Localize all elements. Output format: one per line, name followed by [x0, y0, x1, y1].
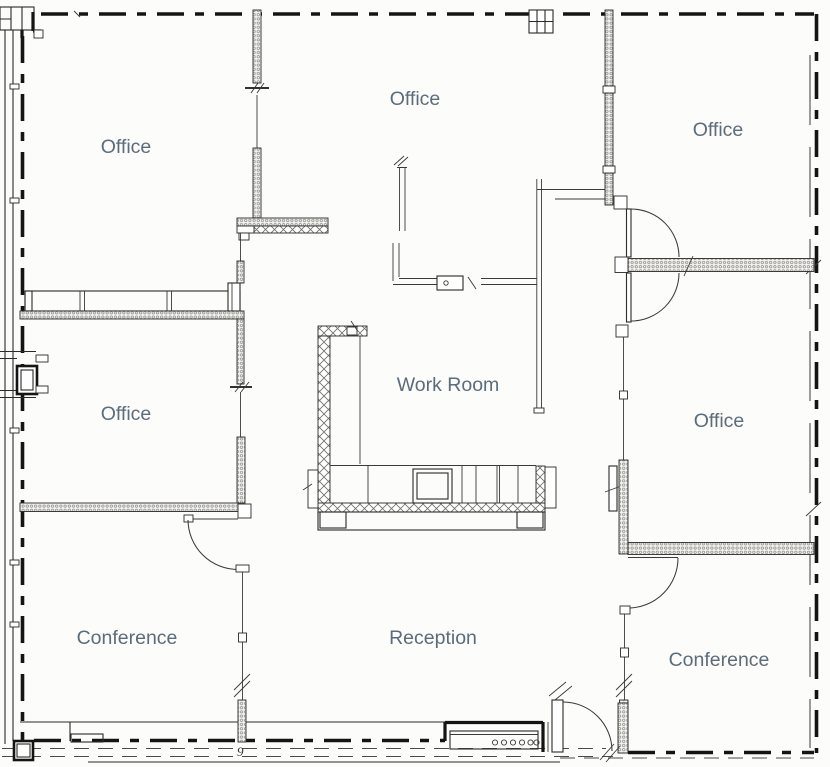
storefront-conference-right — [560, 744, 814, 762]
door-conference-right — [620, 558, 678, 615]
partition-conference-left: 9 — [234, 572, 250, 759]
partition-office-mid-right — [605, 337, 628, 554]
entry-door — [549, 682, 628, 753]
floor-plan-drawing: 9 — [0, 0, 830, 767]
sink-fixture — [437, 276, 463, 290]
entry-vestibule-walls — [445, 722, 548, 752]
partition-midleft-office — [230, 319, 252, 503]
column-mid-left — [0, 352, 48, 398]
room-label-office-mid-right: Office — [694, 410, 745, 432]
reception-desk — [450, 731, 539, 749]
wall-conference-left-top — [20, 503, 251, 518]
door-office-top-right — [627, 209, 680, 257]
wall-office-topleft-bottom — [20, 233, 244, 319]
credenza-top-left-office — [25, 283, 240, 311]
room-labels: Office Office Office Office Work Room Of… — [77, 88, 770, 671]
partition-topcenter-topright — [603, 10, 627, 209]
room-label-reception: Reception — [389, 627, 477, 649]
room-label-office-top-center: Office — [390, 88, 441, 110]
wall-conference-right-top — [628, 543, 814, 555]
room-label-office-mid-left: Office — [101, 403, 152, 425]
room-label-office-top-left: Office — [101, 136, 152, 158]
room-label-conference-left: Conference — [77, 627, 178, 649]
door-conference-left — [184, 515, 249, 572]
column-top-left — [0, 7, 43, 38]
room-label-work-room: Work Room — [397, 374, 500, 396]
floor-plan-page: 9 — [0, 0, 830, 767]
wall-office-topright-bottom — [615, 256, 814, 276]
work-room-counter — [303, 466, 556, 531]
keynote-tag: 9 — [237, 744, 244, 759]
work-room-walls — [318, 321, 545, 512]
column-top-center — [529, 10, 553, 33]
door-office-mid-right — [616, 273, 679, 337]
partition-topleft-office — [237, 10, 328, 240]
room-label-conference-right: Conference — [669, 649, 770, 671]
room-label-office-top-right: Office — [693, 119, 744, 141]
